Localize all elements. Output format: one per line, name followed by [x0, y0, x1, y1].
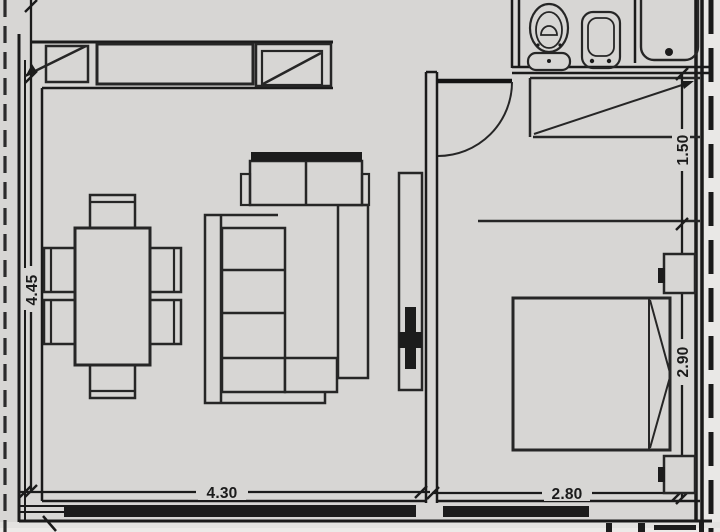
bathtub-drain — [665, 48, 673, 56]
label-living-height: 4.45 — [24, 274, 41, 305]
dining-chair-left-1 — [44, 248, 75, 292]
dining-chair-right-1 — [150, 248, 181, 292]
dining-chair-left-2 — [44, 300, 75, 344]
label-living-width: 4.30 — [207, 485, 238, 502]
sofa-back-band — [251, 152, 362, 161]
floor-plan: 4.45 4.30 2.80 1.50 2.90 — [0, 0, 720, 532]
label-bedroom-height: 2.90 — [675, 347, 692, 378]
nightstand-bottom — [658, 456, 695, 493]
dining-chair-top — [90, 195, 135, 228]
sofa-seats-vertical — [222, 228, 285, 392]
label-closet-depth: 1.50 — [675, 135, 692, 166]
dining-table — [75, 228, 150, 365]
nightstand-top — [658, 254, 695, 293]
double-bed — [513, 298, 670, 450]
sofa-corner-seat — [285, 358, 337, 392]
dining-chair-right-2 — [150, 300, 181, 344]
label-bedroom-width: 2.80 — [552, 486, 583, 503]
dining-chair-bottom — [90, 365, 135, 398]
